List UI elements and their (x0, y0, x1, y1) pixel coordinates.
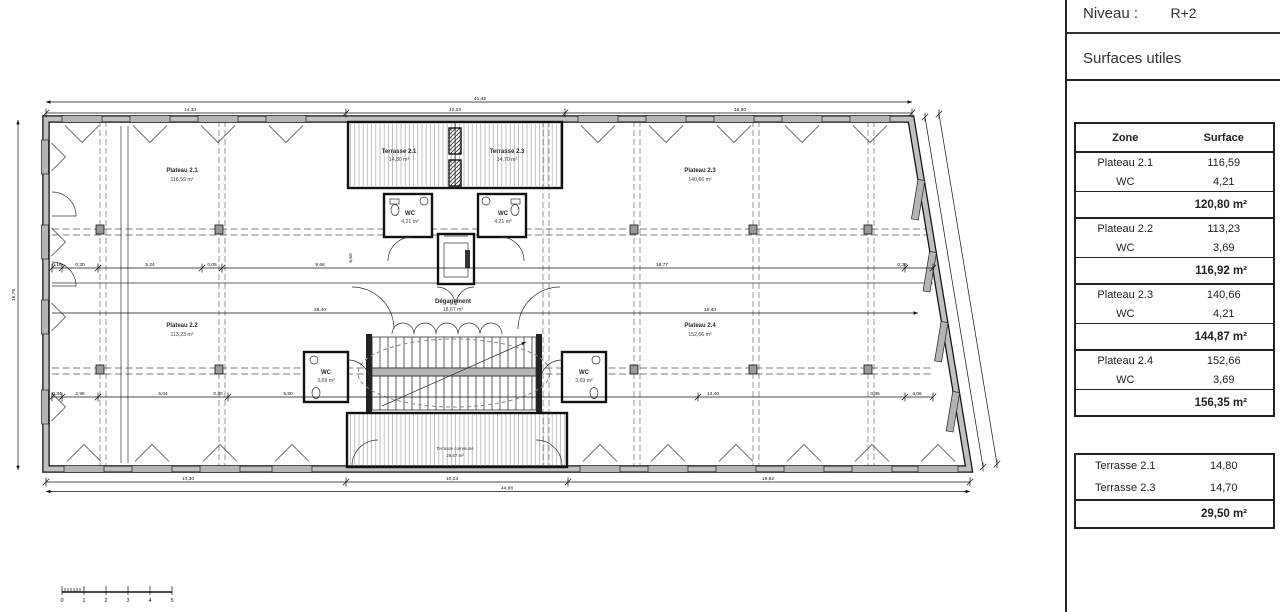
dim-left-overall: 16,76 (11, 289, 17, 301)
scale-4: 4 (148, 598, 151, 604)
dim-inner: 0,30 (897, 262, 907, 268)
scale-5: 5 (170, 598, 173, 604)
niveau-value: R+2 (1170, 5, 1196, 21)
plateau-2-1-label: Plateau 2.1 (166, 168, 198, 174)
total-row: 29,50 m² (1075, 500, 1274, 528)
surfaces-panel: Niveau : R+2 Surfaces utiles Zone Surfac… (1065, 0, 1280, 612)
terrasse-2-1-label: Terrasse 2.1 (382, 149, 417, 155)
zone-cell: Plateau 2.1 (1075, 152, 1175, 172)
wc-mid-right-area: 3,69 m² (575, 378, 593, 384)
table-row: WC 4,21 (1075, 304, 1274, 324)
roof-terrace-top: Terrasse 2.1 14,80 m² Terrasse 2.3 14,70… (348, 122, 562, 188)
col-surface: Surface (1175, 123, 1275, 152)
wc-mid-right: WC 3,69 m² (540, 352, 606, 402)
plateau-2-2-area: 113,23 m² (171, 332, 194, 338)
niveau-row: Niveau : R+2 (1083, 5, 1197, 23)
floor-plan-drawing: Terrasse 2.1 14,80 m² Terrasse 2.3 14,70… (0, 0, 1065, 612)
plateau-2-4-label: Plateau 2.4 (684, 323, 716, 329)
terrasse-2-3-area: 14,70 m² (497, 157, 518, 163)
dim-bottom-right: 19,82 (762, 476, 774, 482)
table-row: Plateau 2.4 152,66 (1075, 350, 1274, 370)
dim-bottom-left: 14,30 (182, 476, 194, 482)
zone-cell: Plateau 2.3 (1075, 284, 1175, 304)
dim-top-right: 16,80 (734, 107, 746, 113)
subtotal-row: 120,80 m² (1075, 192, 1274, 219)
toiture-area: 29,87 m² (446, 453, 464, 458)
subtotal-cell: 156,35 m² (1075, 390, 1274, 417)
degagement-label: Dégagement (435, 299, 471, 305)
dim-inner: 0,35 (870, 391, 880, 397)
scale-3: 3 (126, 598, 129, 604)
subtotal-row: 144,87 m² (1075, 324, 1274, 351)
plateau-2-1-area: 116,59 m² (171, 177, 194, 183)
staircase (358, 323, 550, 412)
roof-terrace-bottom: Terrasse commune 29,87 m² (347, 413, 567, 467)
core-wc-left: WC 4,21 m² (384, 194, 432, 261)
table-row: Plateau 2.1 116,59 (1075, 152, 1274, 172)
zone-cell: Plateau 2.2 (1075, 218, 1175, 238)
dim-mid-right: 16,40 (704, 307, 716, 313)
surface-cell: 14,80 (1175, 454, 1275, 477)
dim-inner: 16,77 (656, 262, 668, 268)
table-row: WC 3,69 (1075, 238, 1274, 258)
subtotal-cell: 144,87 m² (1075, 324, 1274, 351)
surface-cell: 152,66 (1175, 350, 1275, 370)
dim-top-mid: 10,23 (449, 107, 461, 113)
subtotal-cell: 116,92 m² (1075, 258, 1274, 285)
table-row: WC 3,69 (1075, 370, 1274, 390)
terrasses-table: Terrasse 2.1 14,80 Terrasse 2.3 14,70 29… (1074, 453, 1275, 529)
scale-2: 2 (104, 598, 107, 604)
surface-cell: 3,69 (1175, 370, 1275, 390)
wc-mid-left-area: 3,69 m² (317, 378, 335, 384)
subtotal-row: 156,35 m² (1075, 390, 1274, 417)
zone-cell: WC (1075, 172, 1175, 192)
surface-cell: 14,70 (1175, 477, 1275, 500)
table-row: Plateau 2.3 140,66 (1075, 284, 1274, 304)
dim-inner: 0,34 (52, 391, 62, 397)
dim-bottom-overall: 44,88 (501, 486, 513, 492)
left-wall-doors (52, 192, 76, 286)
degagement-lobby: Dégagement 18,67 m² (352, 287, 560, 329)
zone-cell: Terrasse 2.1 (1075, 454, 1175, 477)
wc-top-right-area: 4,21 m² (494, 219, 512, 225)
dim-inner: 5,24 (145, 262, 155, 268)
plateau-2-4-area: 152,66 m² (688, 332, 712, 338)
scale-bar: 0 1 2 3 4 5 (60, 586, 173, 604)
terrasse-2-1-area: 14,80 m² (389, 157, 410, 163)
panel-subtitle: Surfaces utiles (1083, 50, 1181, 67)
table-row: WC 4,21 (1075, 172, 1274, 192)
zone-cell: Terrasse 2.3 (1075, 477, 1175, 500)
core-wc-right: WC 4,21 m² (478, 194, 526, 261)
niveau-label: Niveau : (1083, 5, 1138, 22)
elevator (438, 234, 474, 284)
plateau-2-3-label: Plateau 2.3 (684, 168, 716, 174)
panel-divider-1 (1067, 32, 1280, 34)
dim-inner: 14,40 (707, 391, 719, 397)
zone-cell: WC (1075, 370, 1175, 390)
dim-inner: 5,80 (283, 391, 293, 397)
subtotal-row: 116,92 m² (1075, 258, 1274, 285)
table-row: Terrasse 2.3 14,70 (1075, 477, 1274, 500)
surface-cell: 116,59 (1175, 152, 1275, 172)
terrasse-2-3-label: Terrasse 2.3 (490, 149, 525, 155)
table-row: Terrasse 2.1 14,80 (1075, 454, 1274, 477)
wc-top-right-label: WC (498, 211, 509, 217)
surface-cell: 113,23 (1175, 218, 1275, 238)
wc-top-left-label: WC (405, 211, 416, 217)
zone-cell: WC (1075, 304, 1175, 324)
zone-cell: WC (1075, 238, 1175, 258)
dim-inner: 0,05 (207, 262, 217, 268)
wc-top-left-area: 4,21 m² (401, 219, 419, 225)
wc-mid-left-label: WC (321, 370, 332, 376)
dim-inner: 9,66 (315, 262, 325, 268)
dim-inner: 0,30 (75, 262, 85, 268)
zone-cell: Plateau 2.4 (1075, 350, 1175, 370)
scale-0: 0 (60, 598, 63, 604)
table-header: Zone Surface (1075, 123, 1274, 152)
dim-core-v: 6,60 (348, 253, 354, 263)
toiture-label: Terrasse commune (436, 446, 474, 451)
dim-inner: 0,30 (213, 391, 223, 397)
dim-inner: 4,06 (912, 391, 922, 397)
surface-cell: 4,21 (1175, 304, 1275, 324)
dim-top-overall: 41,42 (474, 96, 486, 102)
dim-top-left: 14,30 (184, 107, 196, 113)
wc-mid-right-label: WC (579, 370, 590, 376)
scale-1: 1 (82, 598, 85, 604)
surface-cell: 3,69 (1175, 238, 1275, 258)
total-cell: 29,50 m² (1075, 500, 1274, 528)
plateau-2-2-label: Plateau 2.2 (166, 323, 198, 329)
plateau-2-3-area: 140,66 m² (688, 177, 712, 183)
degagement-area: 18,67 m² (443, 307, 464, 313)
dim-inner: 5,04 (158, 391, 168, 397)
surface-cell: 4,21 (1175, 172, 1275, 192)
table-row: Plateau 2.2 113,23 (1075, 218, 1274, 238)
dim-inner: 2,96 (75, 391, 85, 397)
surfaces-table: Zone Surface Plateau 2.1 116,59 WC 4,21 … (1074, 122, 1275, 417)
dim-inner: 0,16 (52, 262, 62, 268)
panel-divider-2 (1067, 79, 1280, 81)
surface-cell: 140,66 (1175, 284, 1275, 304)
dim-bottom-mid: 10,23 (446, 476, 458, 482)
subtotal-cell: 120,80 m² (1075, 192, 1274, 219)
wc-mid-left: WC 3,69 m² (304, 352, 370, 402)
dim-mid-left: 26,40 (314, 307, 326, 313)
col-zone: Zone (1075, 123, 1175, 152)
